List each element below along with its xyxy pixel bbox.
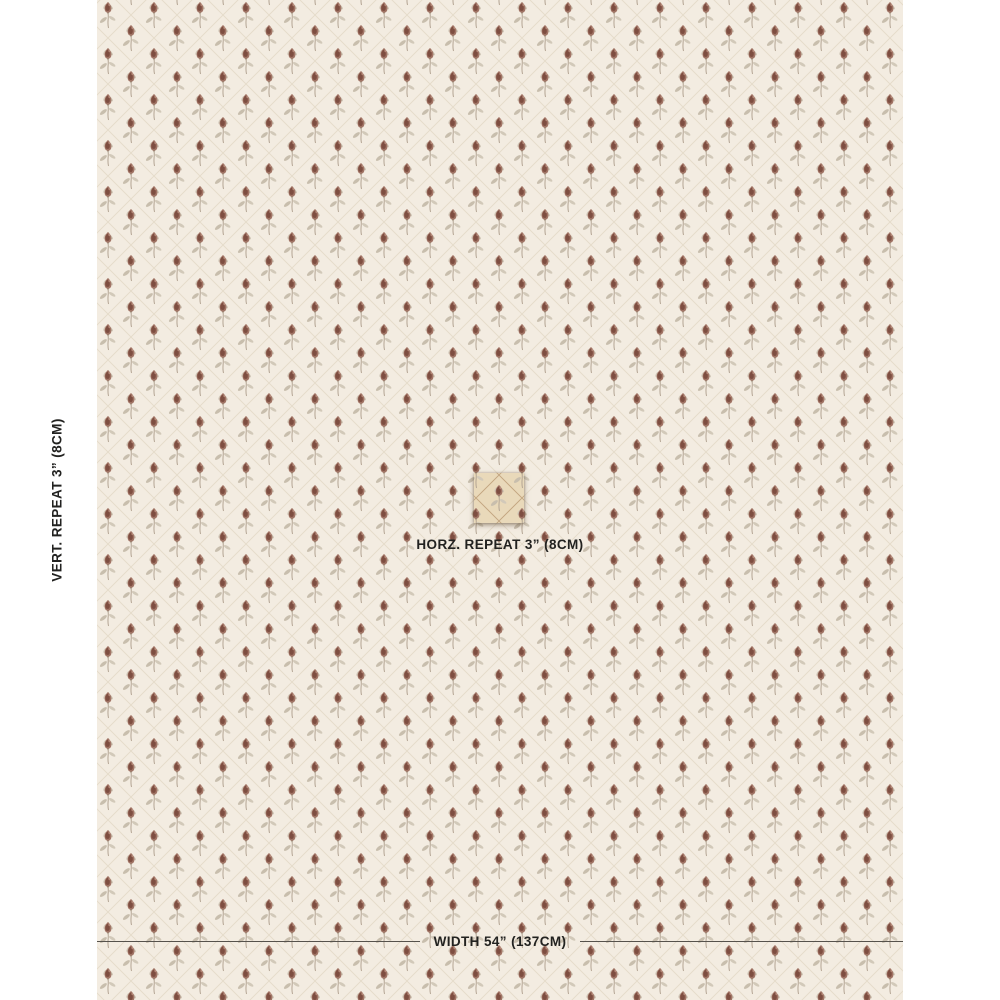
repeat-tile-area <box>474 473 524 523</box>
horizontal-repeat-label: HORZ. REPEAT 3” (8CM) <box>416 537 583 552</box>
width-annotation: WIDTH 54” (137CM) <box>97 934 903 948</box>
width-line-left <box>97 941 420 942</box>
width-label: WIDTH 54” (137CM) <box>434 934 567 949</box>
vertical-repeat-label: VERT. REPEAT 3” (8CM) <box>50 418 65 581</box>
width-line-right <box>580 941 903 942</box>
repeat-tile-highlight <box>474 473 524 523</box>
